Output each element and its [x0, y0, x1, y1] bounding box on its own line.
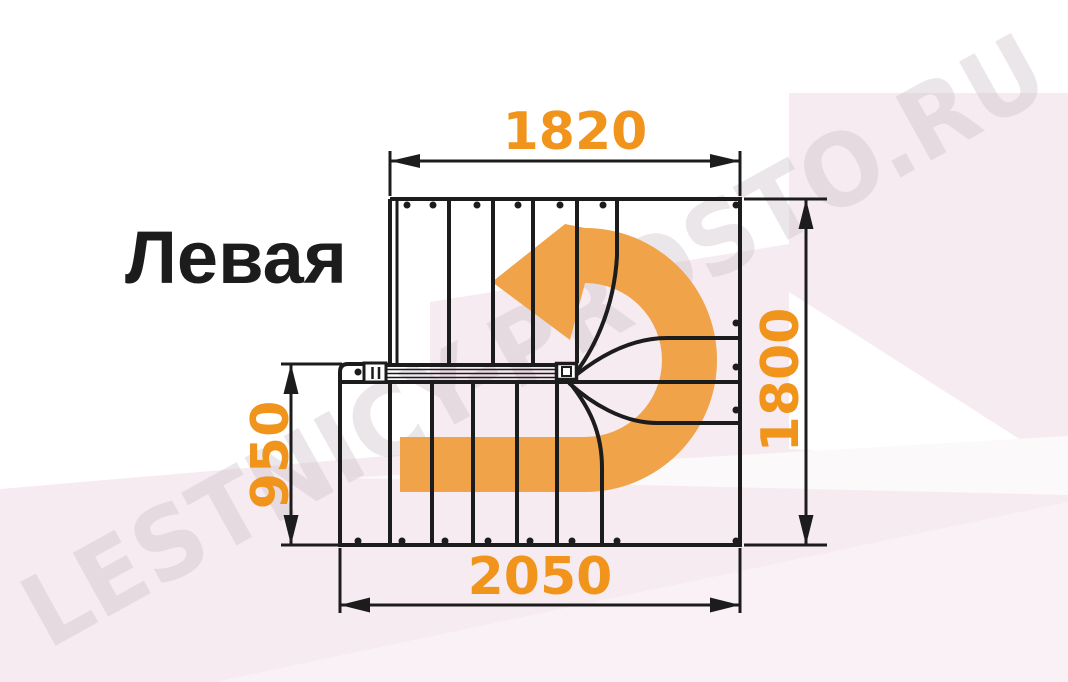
newel-left	[364, 363, 386, 382]
dimension-label-right: 1800	[751, 308, 811, 453]
baluster-dot	[569, 538, 576, 545]
staircase-plan-svg: LESTNICY-PROSTO.RU	[0, 0, 1068, 682]
staircase-drawing-page: LESTNICY-PROSTO.RU	[0, 0, 1068, 682]
baluster-dot	[485, 538, 492, 545]
baluster-dot	[474, 202, 481, 209]
newel-right	[557, 364, 577, 380]
baluster-dot	[733, 202, 740, 209]
baluster-dot	[733, 538, 740, 545]
baluster-dot	[733, 407, 740, 414]
baluster-dot	[733, 364, 740, 371]
baluster-dot	[399, 538, 406, 545]
baluster-dot	[557, 202, 564, 209]
baluster-dot	[442, 538, 449, 545]
dimension-label-bottom: 2050	[468, 547, 613, 607]
dimension-label-left: 950	[241, 401, 301, 510]
baluster-dot	[600, 202, 607, 209]
arrowhead	[390, 154, 420, 168]
dimension-top: 1820	[390, 102, 740, 196]
baluster-dot	[404, 202, 411, 209]
baluster-dot	[527, 538, 534, 545]
baluster-dot	[355, 538, 362, 545]
baluster-dot	[355, 369, 362, 376]
baluster-dot	[614, 538, 621, 545]
arrowhead	[284, 364, 299, 394]
dimension-label-top: 1820	[503, 102, 648, 162]
baluster-dot	[515, 202, 522, 209]
page-title: Левая	[125, 216, 347, 299]
baluster-dot	[430, 202, 437, 209]
baluster-dot	[733, 320, 740, 327]
